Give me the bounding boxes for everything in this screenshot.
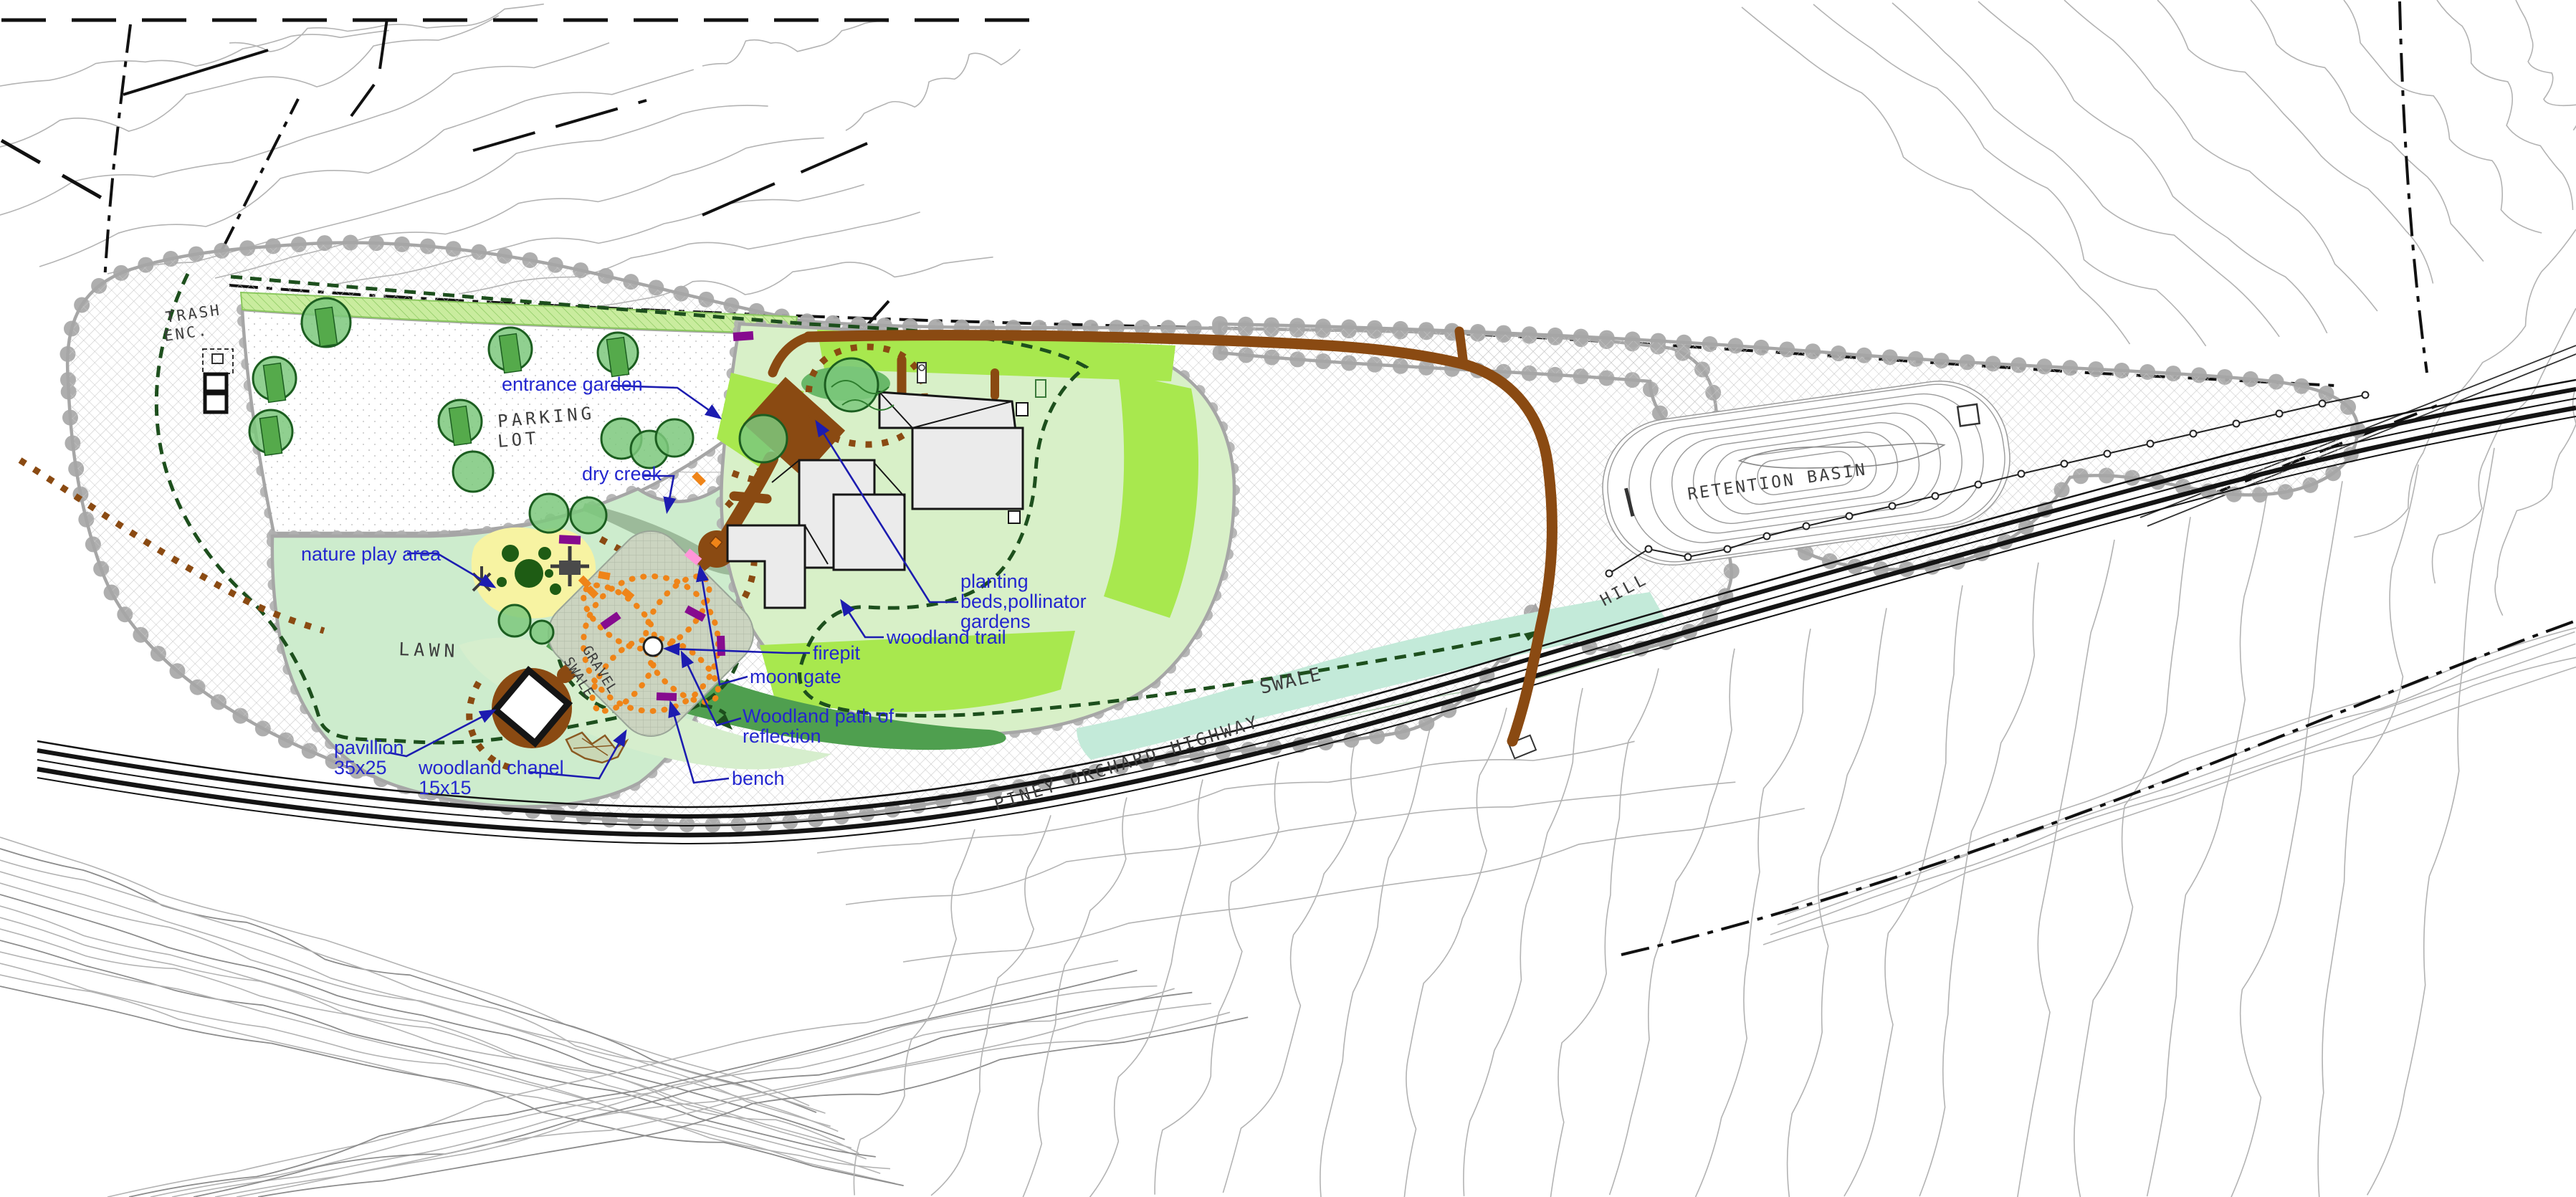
survey-line xyxy=(123,50,268,95)
boulder xyxy=(515,559,543,588)
light-pole xyxy=(917,363,926,383)
tree-canopy xyxy=(740,415,787,462)
tree-canopy xyxy=(453,452,493,492)
contour-line xyxy=(0,929,867,1159)
fence-post xyxy=(2362,392,2369,399)
contour-line xyxy=(1464,688,1583,1196)
contour-line xyxy=(258,1017,1248,1197)
tree-canopy xyxy=(530,621,553,644)
contour-line xyxy=(0,837,809,1106)
contour-line xyxy=(1320,726,1431,1197)
fence-post xyxy=(2319,401,2326,407)
contour-line xyxy=(2516,0,2576,130)
survey-line-2 xyxy=(221,99,298,252)
lawn-label: LAWN xyxy=(399,639,459,662)
contour-line xyxy=(0,16,499,147)
contour-line xyxy=(2074,517,2190,1197)
contour-line xyxy=(1742,7,2130,344)
courtyard-stub xyxy=(734,496,767,499)
contour-line xyxy=(2157,0,2433,284)
bench-rect xyxy=(559,535,581,545)
outlet-structure xyxy=(1957,404,1979,426)
fence-post xyxy=(1975,482,1982,488)
contour-line xyxy=(1089,780,1203,1197)
fence-post xyxy=(1889,503,1896,510)
pavillion-label-1: pavillion xyxy=(334,737,404,758)
bench-rect xyxy=(657,692,677,701)
chapel-label-2: 15x15 xyxy=(419,777,472,798)
contour-line xyxy=(1770,657,2576,935)
contour-line xyxy=(0,906,851,1148)
tree-canopy xyxy=(571,497,606,533)
entrance-garden-label: entrance garden xyxy=(502,373,643,395)
fence-post xyxy=(1646,546,1652,553)
fence-post xyxy=(2061,461,2068,467)
contour-line xyxy=(1155,762,1279,1195)
tree-canopy xyxy=(499,605,530,636)
trash-bin xyxy=(205,394,226,412)
bench-rect xyxy=(733,331,754,341)
contour-line xyxy=(903,809,1805,962)
boulder xyxy=(545,569,553,578)
contour-line xyxy=(0,883,838,1131)
contour-line xyxy=(194,993,1192,1197)
contour-line xyxy=(931,815,1051,1196)
fence-post xyxy=(2233,421,2240,427)
contour-line xyxy=(1919,563,2038,1196)
boulder xyxy=(550,583,561,595)
building-appendage xyxy=(1016,403,1028,416)
contour-line xyxy=(2064,0,2377,311)
fence-post xyxy=(1764,533,1770,540)
contour-line xyxy=(1763,667,2576,945)
woodland-path-label-2: reflection xyxy=(743,725,821,747)
site-plan-drawing: RETENTION BASIN xyxy=(0,0,2576,1197)
boundary-vertical-west xyxy=(105,24,130,281)
fence-post xyxy=(1932,493,1939,500)
contour-line xyxy=(2147,497,2266,1196)
play-structure xyxy=(559,561,581,575)
fence-post xyxy=(2276,411,2283,417)
contour-line xyxy=(215,1003,1211,1197)
contour-line xyxy=(846,49,1020,130)
chapel-label-1: woodland chapel xyxy=(418,757,564,778)
contour-line xyxy=(0,30,389,86)
fence-post xyxy=(2104,451,2111,457)
dry-creek-label: dry creek xyxy=(582,463,662,485)
planting-label-2: beds,pollinator xyxy=(960,591,1087,612)
fence-post xyxy=(1803,523,1810,530)
woodland-path-label-1: Woodland path of xyxy=(743,705,895,727)
contour-line xyxy=(1785,632,2575,915)
survey-line-5 xyxy=(702,143,867,215)
contour-line xyxy=(2231,481,2342,1197)
survey-tick xyxy=(351,85,374,116)
contour-line xyxy=(0,917,859,1153)
pavillion-label-2: 35x25 xyxy=(334,757,387,778)
tree-canopy xyxy=(530,494,568,533)
nature-play-label: nature play area xyxy=(301,543,442,565)
contour-line xyxy=(0,43,609,215)
boulder xyxy=(502,545,519,562)
fence-post xyxy=(1725,546,1731,553)
boulder xyxy=(538,547,551,560)
contour-line xyxy=(1610,649,1735,1195)
boulder xyxy=(497,577,507,587)
woodland-trail-label: woodland trail xyxy=(886,626,1006,648)
contour-line xyxy=(2354,229,2576,538)
bench-rect xyxy=(717,636,725,656)
building-right xyxy=(912,428,1023,509)
fence-post xyxy=(2147,441,2154,447)
fence-post xyxy=(2190,431,2197,437)
survey-line-4 xyxy=(473,100,647,151)
contour-line xyxy=(702,22,889,66)
contour-line xyxy=(1223,744,1356,1193)
fence-post xyxy=(1606,571,1613,577)
contour-line xyxy=(1788,608,1886,1197)
fence-post xyxy=(2018,471,2025,477)
bench-label: bench xyxy=(732,768,785,789)
parking-label-2: LOT xyxy=(497,428,540,452)
fence-post xyxy=(1685,554,1692,561)
contour-line xyxy=(2344,0,2542,233)
contour-line xyxy=(1404,708,1507,1197)
moon-gate-label: moon gate xyxy=(750,666,841,687)
property-line-right-vertical xyxy=(2400,1,2427,373)
contour-line xyxy=(1022,798,1127,1197)
firepit-label: firepit xyxy=(813,642,861,664)
contour-line xyxy=(1778,644,2575,925)
trash-bin xyxy=(205,374,226,391)
contour-line xyxy=(2017,540,2114,1197)
planting-label-1: planting xyxy=(960,571,1029,592)
contour-line xyxy=(2318,464,2418,1197)
contour-line xyxy=(0,895,845,1140)
fence-post xyxy=(1846,513,1853,520)
contour-line xyxy=(1978,1,2327,333)
building-appendage xyxy=(1008,511,1020,523)
firepit-circle xyxy=(644,637,662,656)
tree-canopy xyxy=(656,419,693,457)
contour-line xyxy=(2367,448,2494,1195)
contour-line xyxy=(1813,4,2206,346)
contour-line xyxy=(1892,3,2279,337)
